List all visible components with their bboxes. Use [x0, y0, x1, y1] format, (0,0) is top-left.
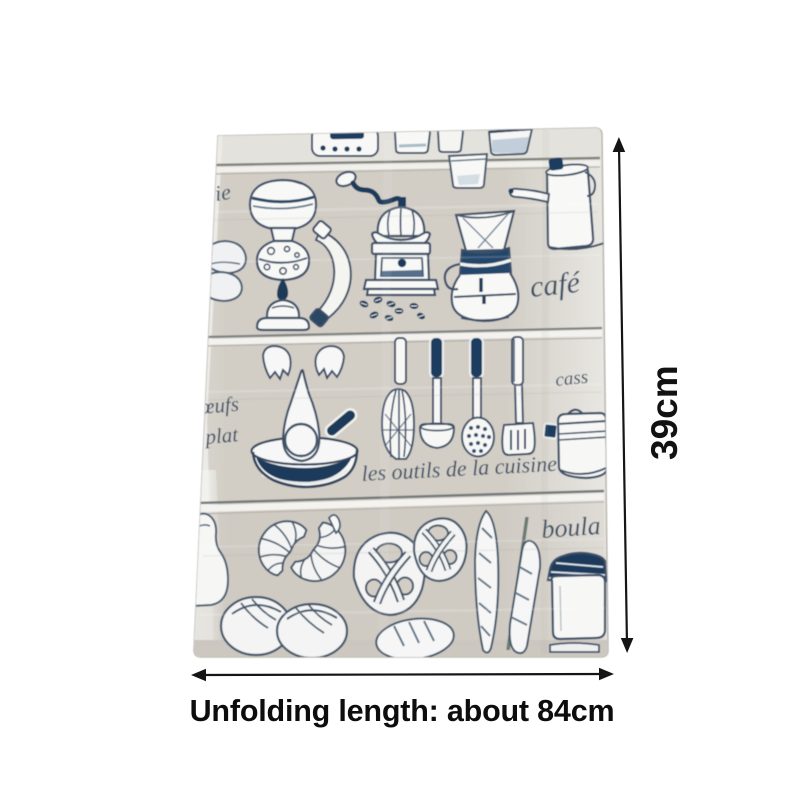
svg-text:cass: cass — [554, 367, 589, 391]
svg-text:39cm: 39cm — [644, 365, 685, 460]
svg-text:Unfolding length: about 84cm: Unfolding length: about 84cm — [190, 694, 615, 728]
svg-text:café: café — [528, 266, 583, 304]
svg-text:plat: plat — [202, 422, 240, 449]
